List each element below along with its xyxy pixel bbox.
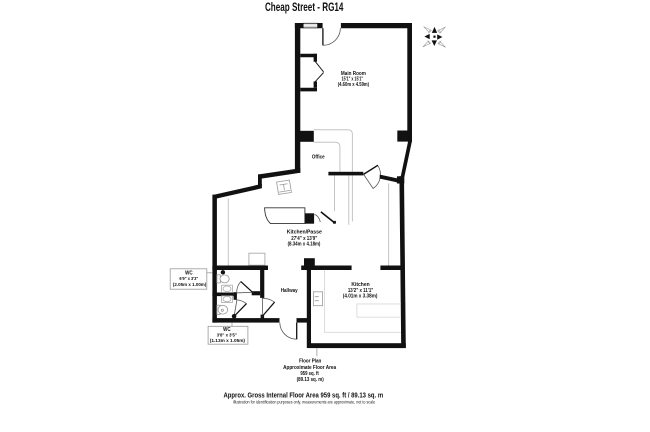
svg-text:(4.01m x 3.38m): (4.01m x 3.38m): [343, 294, 378, 300]
svg-text:(8.34m x 4.18m): (8.34m x 4.18m): [288, 242, 321, 248]
svg-text:(1.13m x 1.05m): (1.13m x 1.05m): [210, 338, 246, 344]
svg-text:Hallway: Hallway: [281, 288, 299, 294]
svg-text:(4.60m x 4.59m): (4.60m x 4.59m): [338, 82, 370, 88]
svg-text:Office: Office: [312, 154, 325, 160]
svg-text:Kitchen: Kitchen: [351, 282, 370, 288]
svg-text:WC: WC: [185, 270, 193, 276]
svg-text:(2.05m x 1.00m): (2.05m x 1.00m): [173, 282, 207, 288]
svg-text:3'8" x 3'5": 3'8" x 3'5": [217, 333, 237, 339]
svg-text:Cheap Street - RG14: Cheap Street - RG14: [265, 1, 344, 14]
svg-text:(89.13 sq. m): (89.13 sq. m): [297, 377, 324, 383]
svg-text:959 sq. ft: 959 sq. ft: [300, 371, 319, 377]
svg-text:Kitchen/Passe: Kitchen/Passe: [287, 230, 322, 236]
svg-text:Approx. Gross Internal Floor A: Approx. Gross Internal Floor Area 959 sq…: [224, 390, 384, 399]
svg-text:WC: WC: [223, 327, 231, 333]
svg-text:Floor Plan: Floor Plan: [299, 359, 321, 365]
svg-text:Approximate Floor Area: Approximate Floor Area: [283, 365, 336, 371]
svg-text:Illustration for identificatio: Illustration for identification purposes…: [233, 400, 376, 405]
svg-text:6'9" x 3'3": 6'9" x 3'3": [179, 276, 198, 282]
